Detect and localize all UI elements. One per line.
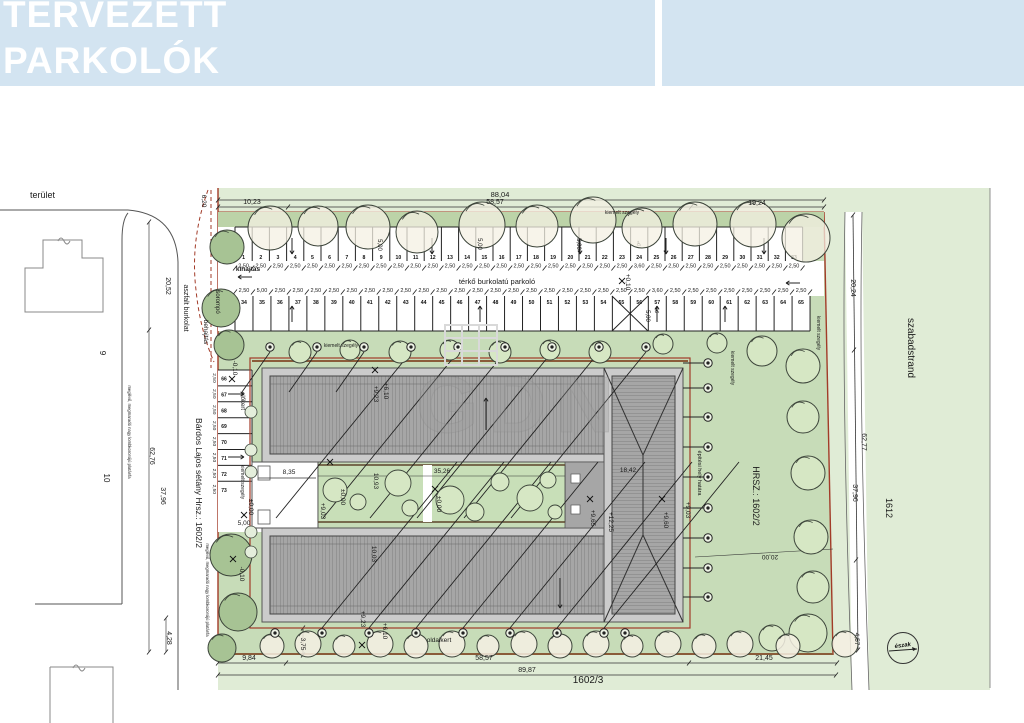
svg-text:16: 16 xyxy=(499,255,505,261)
svg-text:kiemelt szegély: kiemelt szegély xyxy=(239,465,245,500)
svg-text:43: 43 xyxy=(403,300,409,306)
svg-text:10: 10 xyxy=(102,474,111,483)
svg-text:+9,03: +9,03 xyxy=(684,502,691,519)
svg-text:5,00: 5,00 xyxy=(238,520,251,527)
svg-text:20,24: 20,24 xyxy=(849,279,856,297)
svg-text:35: 35 xyxy=(259,300,265,306)
svg-text:62,76: 62,76 xyxy=(148,447,155,465)
svg-text:2,50: 2,50 xyxy=(436,288,447,294)
svg-text:±0,00: ±0,00 xyxy=(247,499,254,516)
svg-text:terület: terület xyxy=(30,190,56,200)
svg-text:2,50: 2,50 xyxy=(418,288,429,294)
svg-text:69: 69 xyxy=(221,424,227,430)
svg-text:±0,00: ±0,00 xyxy=(435,496,442,513)
svg-text:+9,23: +9,23 xyxy=(372,386,379,403)
svg-text:építési hely határa: építési hely határa xyxy=(696,451,702,497)
svg-text:1612: 1612 xyxy=(884,498,894,518)
svg-text:10,93: 10,93 xyxy=(372,473,379,490)
svg-text:2,50: 2,50 xyxy=(688,288,699,294)
svg-text:+9,03: +9,03 xyxy=(319,503,326,520)
svg-text:2,50: 2,50 xyxy=(211,453,217,463)
svg-text:20,00: 20,00 xyxy=(761,553,778,560)
svg-text:58,57: 58,57 xyxy=(486,199,504,206)
svg-text:2,50: 2,50 xyxy=(490,288,501,294)
svg-text:+6,10: +6,10 xyxy=(382,383,389,400)
svg-text:22: 22 xyxy=(602,255,608,261)
svg-text:20,52: 20,52 xyxy=(164,277,171,295)
svg-text:34: 34 xyxy=(241,300,247,306)
svg-text:2,50: 2,50 xyxy=(479,264,490,270)
svg-text:7: 7 xyxy=(345,255,348,261)
svg-text:2,50: 2,50 xyxy=(400,288,411,294)
svg-text:2,50: 2,50 xyxy=(472,288,483,294)
svg-text:3,60: 3,60 xyxy=(634,264,645,270)
svg-text:2,50: 2,50 xyxy=(513,264,524,270)
svg-text:20: 20 xyxy=(568,255,574,261)
svg-text:+6,10: +6,10 xyxy=(381,623,388,640)
svg-text:51: 51 xyxy=(547,300,553,306)
svg-text:26: 26 xyxy=(671,255,677,261)
svg-text:3: 3 xyxy=(277,255,280,261)
svg-text:2,50: 2,50 xyxy=(670,288,681,294)
svg-text:59: 59 xyxy=(690,300,696,306)
svg-text:32: 32 xyxy=(774,255,780,261)
svg-text:2,50: 2,50 xyxy=(544,288,555,294)
svg-text:21: 21 xyxy=(585,255,591,261)
svg-text:2,50: 2,50 xyxy=(668,264,679,270)
svg-text:2,50: 2,50 xyxy=(376,264,387,270)
svg-text:10: 10 xyxy=(396,255,402,261)
svg-text:2,50: 2,50 xyxy=(634,288,645,294)
svg-text:2,50: 2,50 xyxy=(526,288,537,294)
svg-text:5,00: 5,00 xyxy=(376,239,382,251)
svg-text:50: 50 xyxy=(529,300,535,306)
svg-text:behajtás: behajtás xyxy=(202,320,209,345)
svg-text:10,03: 10,03 xyxy=(370,546,377,563)
svg-text:2,50: 2,50 xyxy=(724,288,735,294)
svg-text:2,50: 2,50 xyxy=(211,373,217,383)
svg-text:36: 36 xyxy=(277,300,283,306)
svg-text:2,50: 2,50 xyxy=(706,288,717,294)
svg-text:8: 8 xyxy=(363,255,366,261)
svg-text:60: 60 xyxy=(708,300,714,306)
svg-text:2,50: 2,50 xyxy=(796,288,807,294)
svg-text:21,45: 21,45 xyxy=(755,655,773,662)
svg-text:2,50: 2,50 xyxy=(778,288,789,294)
svg-text:2,50: 2,50 xyxy=(548,264,559,270)
svg-text:27: 27 xyxy=(688,255,694,261)
svg-text:2,50: 2,50 xyxy=(359,264,370,270)
svg-text:2,50: 2,50 xyxy=(382,288,393,294)
svg-text:2,50: 2,50 xyxy=(211,469,217,479)
svg-text:2,50: 2,50 xyxy=(445,264,456,270)
svg-text:13: 13 xyxy=(447,255,453,261)
svg-text:meglévő, megmaradó nagy lombko: meglévő, megmaradó nagy lombkoronájú pla… xyxy=(205,543,210,637)
svg-text:előkert: előkert xyxy=(239,392,245,410)
svg-text:39: 39 xyxy=(331,300,337,306)
svg-text:2,50: 2,50 xyxy=(211,389,217,399)
svg-text:23: 23 xyxy=(619,255,625,261)
svg-text:58,57: 58,57 xyxy=(475,655,493,662)
svg-text:10,23: 10,23 xyxy=(243,199,261,206)
svg-text:2,50: 2,50 xyxy=(293,288,304,294)
svg-text:62,77: 62,77 xyxy=(860,433,867,451)
svg-text:+0,10: +0,10 xyxy=(624,274,631,291)
svg-text:+9,60: +9,60 xyxy=(662,512,669,529)
svg-text:40: 40 xyxy=(349,300,355,306)
svg-text:47: 47 xyxy=(475,300,481,306)
svg-text:kiemelt szegély: kiemelt szegély xyxy=(815,316,821,351)
svg-text:2,50: 2,50 xyxy=(328,288,339,294)
svg-text:2,50: 2,50 xyxy=(771,264,782,270)
svg-text:9: 9 xyxy=(98,351,107,356)
svg-text:-0,10: -0,10 xyxy=(238,567,245,582)
svg-text:2,50: 2,50 xyxy=(580,288,591,294)
svg-text:2,50: 2,50 xyxy=(239,288,250,294)
svg-text:kiemelt szegély: kiemelt szegély xyxy=(324,343,359,349)
svg-text:68: 68 xyxy=(221,408,227,414)
svg-text:11: 11 xyxy=(413,255,419,261)
svg-text:1: 1 xyxy=(242,255,245,261)
svg-text:2,50: 2,50 xyxy=(462,264,473,270)
svg-text:2,50: 2,50 xyxy=(346,288,357,294)
svg-text:2,50: 2,50 xyxy=(720,264,731,270)
svg-text:aszfalt burkolat: aszfalt burkolat xyxy=(182,284,189,331)
svg-text:2,50: 2,50 xyxy=(211,437,217,447)
svg-text:6: 6 xyxy=(328,255,331,261)
svg-text:9: 9 xyxy=(380,255,383,261)
svg-text:2,50: 2,50 xyxy=(599,264,610,270)
svg-text:meglévő, megmaradó nagy lombko: meglévő, megmaradó nagy lombkoronájú pla… xyxy=(127,385,132,479)
svg-text:2,50: 2,50 xyxy=(427,264,438,270)
svg-text:kihajtás: kihajtás xyxy=(236,266,261,273)
svg-text:2,50: 2,50 xyxy=(273,264,284,270)
svg-text:2,50: 2,50 xyxy=(508,288,519,294)
svg-text:18: 18 xyxy=(533,255,539,261)
svg-text:szabadstrand: szabadstrand xyxy=(905,318,916,378)
svg-text:2,50: 2,50 xyxy=(617,264,628,270)
svg-text:2,50: 2,50 xyxy=(703,264,714,270)
svg-text:2,50: 2,50 xyxy=(582,264,593,270)
svg-text:2,50: 2,50 xyxy=(565,264,576,270)
svg-text:2,50: 2,50 xyxy=(496,264,507,270)
svg-text:2,50: 2,50 xyxy=(211,421,217,431)
svg-text:2,50: 2,50 xyxy=(598,288,609,294)
svg-text:45: 45 xyxy=(439,300,445,306)
site-plan-svg: 1234567891011121314151617181920212223242… xyxy=(0,0,1024,723)
svg-text:38: 38 xyxy=(313,300,319,306)
svg-text:66: 66 xyxy=(221,377,227,383)
svg-text:+9,23: +9,23 xyxy=(359,611,366,628)
svg-text:2: 2 xyxy=(259,255,262,261)
svg-text:kiemelt szegély: kiemelt szegély xyxy=(729,351,735,386)
svg-text:4,57: 4,57 xyxy=(853,633,860,646)
svg-text:17: 17 xyxy=(516,255,522,261)
svg-text:2,50: 2,50 xyxy=(364,288,375,294)
svg-text:Bárdos Lajos sétány Hrsz.: 160: Bárdos Lajos sétány Hrsz.: 1602/2 xyxy=(194,418,204,548)
svg-text:2,50: 2,50 xyxy=(410,264,421,270)
svg-text:térkő burkolatú parkoló: térkő burkolatú parkoló xyxy=(459,277,535,286)
svg-text:2,50: 2,50 xyxy=(290,264,301,270)
svg-text:58: 58 xyxy=(672,300,678,306)
svg-text:4: 4 xyxy=(294,255,297,261)
svg-text:88,04: 88,04 xyxy=(491,190,510,199)
svg-text:3,60: 3,60 xyxy=(652,288,663,294)
svg-text:2,50: 2,50 xyxy=(685,264,696,270)
svg-text:8,35: 8,35 xyxy=(283,469,296,476)
svg-text:41: 41 xyxy=(367,300,373,306)
svg-text:5,00: 5,00 xyxy=(644,310,650,322)
svg-text:-0,10: -0,10 xyxy=(231,361,238,376)
svg-text:24: 24 xyxy=(636,255,642,261)
svg-text:64: 64 xyxy=(780,300,786,306)
svg-text:28: 28 xyxy=(705,255,711,261)
svg-text:65: 65 xyxy=(798,300,804,306)
svg-text:3,75: 3,75 xyxy=(299,638,306,651)
svg-text:5: 5 xyxy=(311,255,314,261)
svg-text:2,50: 2,50 xyxy=(760,288,771,294)
svg-text:+9,65: +9,65 xyxy=(589,510,596,527)
svg-text:42: 42 xyxy=(385,300,391,306)
svg-text:37,96: 37,96 xyxy=(159,487,166,505)
svg-text:71: 71 xyxy=(221,456,227,462)
street-left xyxy=(0,210,178,723)
svg-text:30: 30 xyxy=(740,255,746,261)
svg-text:48: 48 xyxy=(493,300,499,306)
svg-text:2,50: 2,50 xyxy=(754,264,765,270)
svg-text:2,50: 2,50 xyxy=(211,405,217,415)
svg-text:52: 52 xyxy=(565,300,571,306)
svg-text:62: 62 xyxy=(744,300,750,306)
svg-text:67: 67 xyxy=(221,392,227,398)
svg-text:57: 57 xyxy=(654,300,660,306)
svg-text:2,50: 2,50 xyxy=(454,288,465,294)
svg-text:4,28: 4,28 xyxy=(165,631,172,645)
svg-text:72: 72 xyxy=(221,472,227,478)
svg-text:2,50: 2,50 xyxy=(789,264,800,270)
svg-text:+12,25: +12,25 xyxy=(607,512,614,532)
svg-text:2,50: 2,50 xyxy=(737,264,748,270)
svg-text:46: 46 xyxy=(457,300,463,306)
svg-text:sorompó: sorompó xyxy=(214,290,220,314)
svg-text:14: 14 xyxy=(464,255,470,261)
svg-text:49: 49 xyxy=(511,300,517,306)
svg-text:35,26: 35,26 xyxy=(434,468,451,475)
svg-text:5,00: 5,00 xyxy=(575,238,581,250)
svg-text:HRSZ.: 1602/2: HRSZ.: 1602/2 xyxy=(751,466,761,526)
svg-text:53: 53 xyxy=(583,300,589,306)
svg-text:25: 25 xyxy=(654,255,660,261)
svg-text:37,96: 37,96 xyxy=(851,484,858,502)
svg-text:6,20: 6,20 xyxy=(200,195,207,208)
svg-text:2,50: 2,50 xyxy=(341,264,352,270)
svg-text:5,00: 5,00 xyxy=(476,238,482,250)
svg-text:oldalkert: oldalkert xyxy=(427,637,452,644)
svg-text:5,00: 5,00 xyxy=(257,288,268,294)
svg-text:2,50: 2,50 xyxy=(211,485,217,495)
svg-text:2,50: 2,50 xyxy=(742,288,753,294)
svg-text:15: 15 xyxy=(482,255,488,261)
svg-text:9,84: 9,84 xyxy=(242,655,256,662)
svg-text:44: 44 xyxy=(421,300,427,306)
svg-text:2,50: 2,50 xyxy=(562,288,573,294)
svg-text:2,50: 2,50 xyxy=(651,264,662,270)
svg-text:18,42: 18,42 xyxy=(620,467,637,474)
svg-text:2,50: 2,50 xyxy=(307,264,318,270)
svg-text:2,50: 2,50 xyxy=(275,288,286,294)
screenshot-stage: TERVEZETT PARKOLÓK 123456789101112131415… xyxy=(0,0,1024,723)
svg-text:GDN: GDN xyxy=(416,360,624,449)
svg-text:89,87: 89,87 xyxy=(518,667,536,674)
svg-text:2,50: 2,50 xyxy=(324,264,335,270)
svg-text:63: 63 xyxy=(762,300,768,306)
svg-text:12: 12 xyxy=(430,255,436,261)
svg-text:2,50: 2,50 xyxy=(311,288,322,294)
svg-text:54: 54 xyxy=(600,300,606,306)
svg-text:70: 70 xyxy=(221,440,227,446)
svg-text:19: 19 xyxy=(550,255,556,261)
svg-text:2,50: 2,50 xyxy=(531,264,542,270)
svg-text:31: 31 xyxy=(757,255,763,261)
svg-text:1602/3: 1602/3 xyxy=(573,675,604,686)
svg-text:29: 29 xyxy=(722,255,728,261)
svg-text:2,50: 2,50 xyxy=(393,264,404,270)
svg-text:19,24: 19,24 xyxy=(748,200,766,207)
svg-text:±0,00: ±0,00 xyxy=(339,489,346,506)
svg-text:kiemelt szegély: kiemelt szegély xyxy=(605,210,640,216)
svg-text:61: 61 xyxy=(726,300,732,306)
svg-text:37: 37 xyxy=(295,300,301,306)
